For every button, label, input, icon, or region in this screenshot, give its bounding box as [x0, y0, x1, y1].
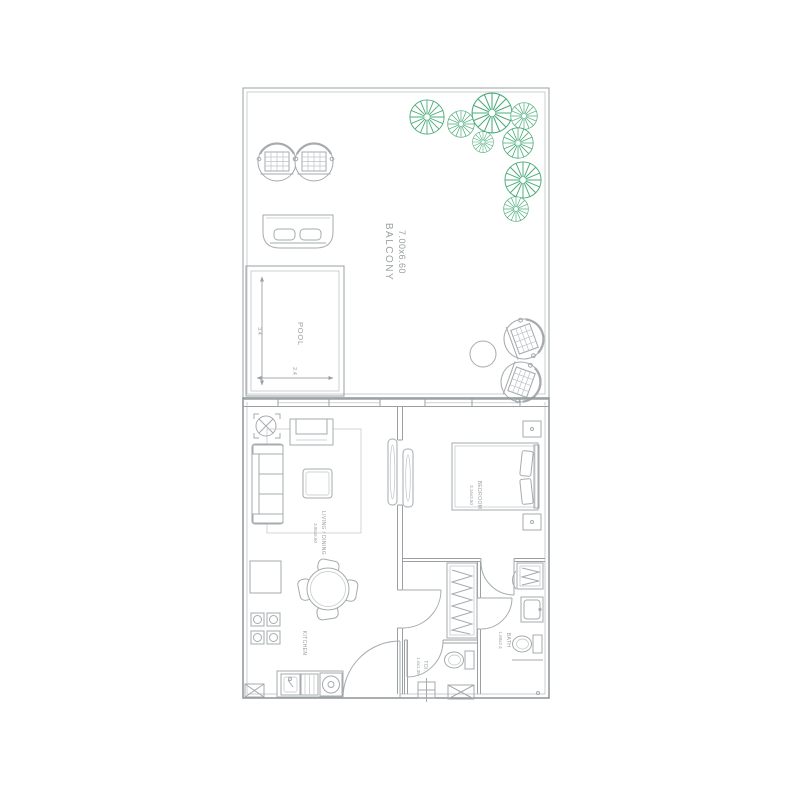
bath-sink-icon	[521, 597, 543, 622]
bedroom-door	[481, 562, 514, 595]
canvas: { "colors": { "tree_green": "#4aac79", "…	[0, 0, 800, 800]
sofa-icon	[252, 444, 283, 524]
toilet-icon	[513, 635, 543, 653]
pool-dim-horizontal: 2.4	[291, 367, 297, 375]
tv-console-icon	[290, 419, 333, 445]
wc-walls	[405, 640, 478, 694]
outdoor-chair-icon	[294, 143, 334, 181]
toilet-label: TOI.	[422, 660, 428, 671]
tree-icon	[410, 100, 444, 134]
bedroom-wall	[403, 559, 545, 562]
bedroom-dims: 3.16x3.50	[469, 485, 474, 505]
tree-icon	[503, 128, 533, 158]
dining-table-icon	[307, 568, 349, 610]
kitchen-label: KITCHEN	[301, 631, 307, 656]
floor-plan: POOL 3.4 2.4 BALCONY 7.00x6.60	[0, 0, 800, 800]
outdoor-chair-icon	[257, 143, 297, 181]
balcony-dims: 7.00x6.60	[397, 230, 407, 274]
dining-set-icon	[297, 558, 359, 620]
bath-label: BATH	[505, 633, 511, 648]
nightstand-icon	[523, 421, 541, 437]
closet-icon	[513, 563, 544, 589]
balcony-label: BALCONY	[383, 223, 394, 281]
window-band	[243, 399, 549, 407]
tree-icon	[511, 103, 538, 130]
sliding-door	[388, 439, 413, 507]
living-dining-label: LIVING / DINING	[320, 511, 326, 555]
balcony-area: POOL 3.4 2.4 BALCONY 7.00x6.60	[243, 88, 550, 408]
bed-icon	[452, 443, 539, 510]
wardrobe-icon	[447, 563, 477, 638]
kitchen-counter	[250, 561, 281, 593]
bath: BATH 1.60x2.4	[498, 597, 543, 695]
bedroom: BEDROOM 3.16x3.50	[452, 421, 541, 530]
entrance-door	[343, 641, 400, 698]
outdoor-chair-icon	[498, 313, 550, 366]
shaft-box	[245, 684, 264, 697]
trees	[410, 93, 541, 221]
nightstand-icon	[523, 514, 541, 530]
stove-icon	[251, 613, 280, 644]
corridor-door	[403, 590, 441, 628]
side-table-icon	[470, 341, 496, 367]
living-dining-dims: 3.85x6.60	[313, 523, 318, 543]
outdoor-chair-icon	[495, 356, 547, 409]
tree-icon	[448, 111, 475, 138]
pool: POOL 3.4 2.4	[246, 266, 344, 396]
toilet-dims: 1.6x1.35	[416, 657, 421, 675]
drain-icon	[537, 692, 540, 695]
bath-wall	[478, 562, 481, 694]
bedroom-label: BEDROOM	[476, 481, 482, 510]
coffee-table-icon	[303, 469, 332, 498]
bath-dims: 1.60x2.4	[498, 631, 503, 649]
outdoor-lounge	[257, 143, 334, 248]
tree-icon	[473, 132, 494, 153]
living-dining: LIVING / DINING 3.85x6.60	[252, 414, 361, 620]
tree-icon	[505, 162, 541, 198]
toilet-icon	[445, 651, 475, 669]
doors	[343, 562, 514, 698]
tree-icon	[472, 93, 512, 133]
shaft-box	[448, 685, 474, 699]
pool-dim-vertical: 3.4	[256, 327, 262, 335]
sink-counter	[277, 671, 343, 697]
pool-label: POOL	[296, 322, 305, 346]
tree-icon	[504, 197, 529, 222]
bath-door	[481, 598, 512, 629]
floor-trap-icon	[418, 678, 435, 702]
